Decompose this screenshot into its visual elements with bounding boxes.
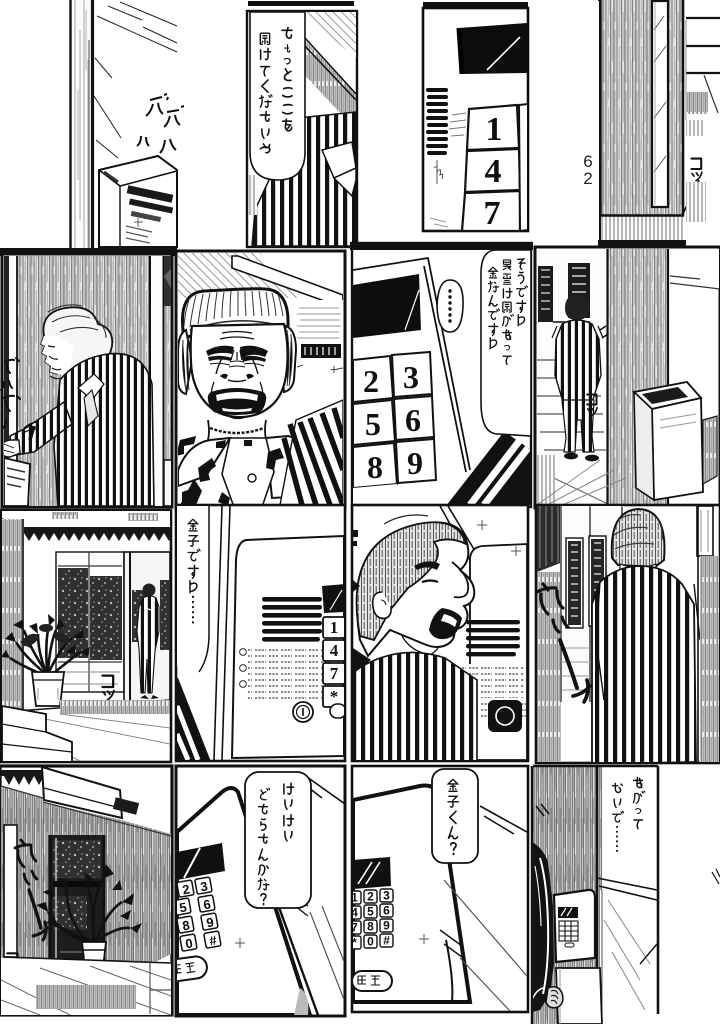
svg-text:*: * (330, 687, 339, 706)
svg-text:4: 4 (485, 153, 502, 190)
svg-text:3: 3 (383, 889, 390, 903)
svg-text:7: 7 (330, 664, 339, 683)
svg-text:9: 9 (383, 919, 390, 933)
svg-text:7: 7 (484, 195, 501, 232)
svg-text:#: # (383, 934, 390, 948)
svg-text:0: 0 (367, 935, 374, 949)
svg-text:2: 2 (363, 363, 379, 399)
svg-text:5: 5 (365, 406, 381, 442)
svg-text:8: 8 (367, 920, 374, 934)
svg-text:1: 1 (330, 618, 339, 637)
svg-text:1: 1 (486, 111, 503, 148)
svg-text:9: 9 (407, 445, 423, 481)
svg-text:2: 2 (367, 890, 374, 904)
svg-text:2: 2 (583, 169, 592, 188)
svg-text:4: 4 (330, 641, 339, 660)
svg-text:5: 5 (367, 905, 374, 919)
svg-text:6: 6 (383, 904, 390, 918)
svg-text:8: 8 (367, 449, 383, 485)
svg-text:6: 6 (405, 402, 421, 438)
svg-text:3: 3 (403, 359, 419, 395)
